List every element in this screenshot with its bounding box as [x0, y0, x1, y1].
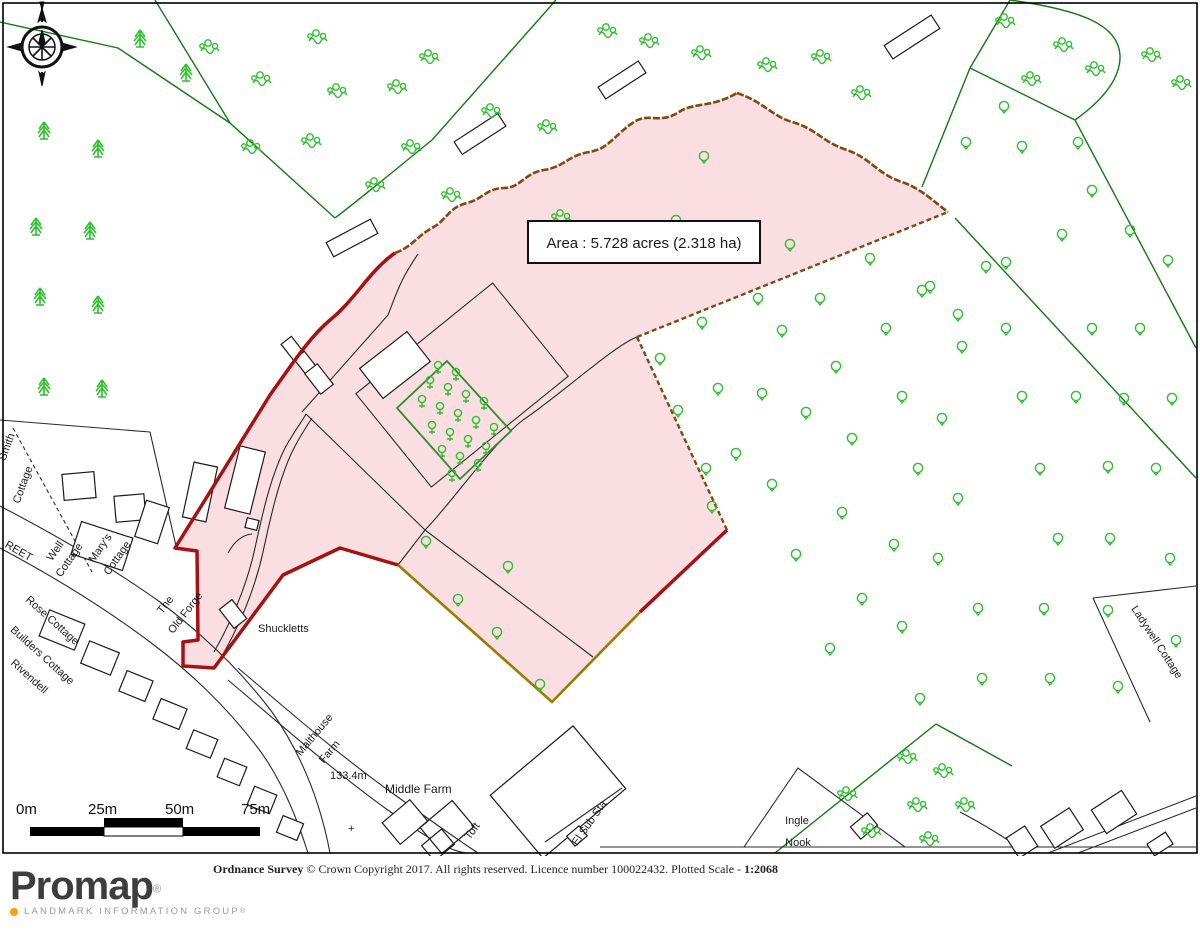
tagline-registered-mark-icon: ®	[240, 908, 247, 915]
landmark-tagline: LANDMARK INFORMATION GROUP®	[10, 906, 247, 917]
scale-tick-75: 75m	[241, 801, 270, 818]
label-ingle-nook: Ingle	[785, 815, 809, 827]
scale-tick-0: 0m	[16, 801, 37, 818]
area-label-text: Area : 5.728 acres (2.318 ha)	[546, 235, 741, 252]
label-middle-farm: Middle Farm	[385, 782, 452, 796]
attribution-text: © Crown Copyright 2017. All rights reser…	[303, 862, 744, 876]
map-svg: Smith Cottage Well Cottage Mary's Cottag…	[0, 0, 1200, 856]
label-benchmark: +	[348, 823, 354, 835]
area-label-box: Area : 5.728 acres (2.318 ha)	[528, 221, 760, 263]
promap-logo: Promap® LANDMARK INFORMATION GROUP®	[10, 868, 247, 917]
registered-mark-icon: ®	[153, 884, 161, 896]
map-canvas[interactable]: Smith Cottage Well Cottage Mary's Cottag…	[0, 0, 1200, 856]
scale-tick-50: 50m	[165, 801, 194, 818]
attribution-line: Ordnance Survey © Crown Copyright 2017. …	[213, 862, 778, 877]
label-shuckletts: Shuckletts	[258, 623, 309, 635]
label-ingle-nook-2: Nook	[785, 837, 811, 849]
orange-dot-icon	[10, 908, 18, 916]
footer: Ordnance Survey © Crown Copyright 2017. …	[0, 856, 1200, 948]
tagline-text: LANDMARK INFORMATION GROUP	[24, 906, 240, 917]
scale-tick-25: 25m	[88, 801, 117, 818]
label-spot-height: 133.4m	[330, 770, 367, 782]
attribution-scale: 1:2068	[744, 862, 778, 876]
promap-wordmark: Promap	[10, 864, 153, 908]
